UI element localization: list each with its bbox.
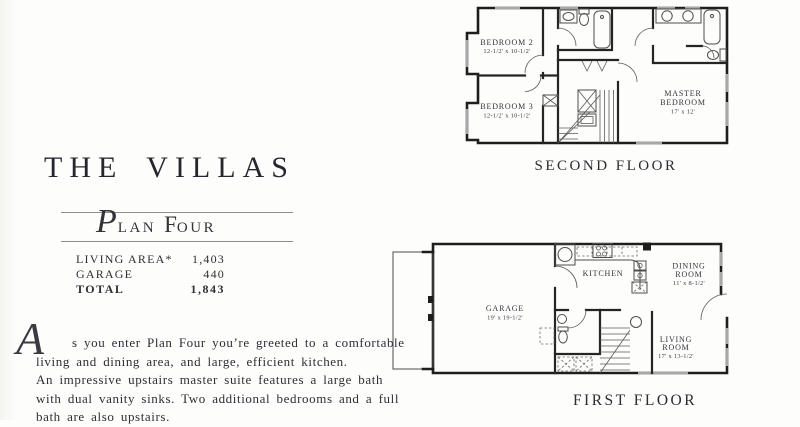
area-stats-table: LIVING AREA* 1,403 GARAGE 440 TOTAL 1,84… xyxy=(76,252,225,297)
bedroom3-label: BEDROOM 3 xyxy=(480,102,533,111)
total-label: TOTAL xyxy=(76,282,124,297)
stat-row-total: TOTAL 1,843 xyxy=(76,282,225,297)
garage-label: GARAGE xyxy=(76,267,133,282)
first-floor-caption: FIRST FLOOR xyxy=(485,392,785,410)
stat-row-garage: GARAGE 440 xyxy=(76,267,225,282)
garage-door-panel xyxy=(393,252,433,369)
brochure-page: THE VILLAS PLANFOUR LIVING AREA* 1,403 G… xyxy=(0,0,800,420)
plan-word1-rest: LAN xyxy=(118,220,156,237)
total-value: 1,843 xyxy=(191,282,226,297)
description-line: living and dining area, and large, effic… xyxy=(36,353,408,372)
bedroom2-label: BEDROOM 2 xyxy=(480,38,533,47)
plan-rule-bottom xyxy=(61,241,293,242)
description-paragraph: s you enter Plan Four you’re greeted to … xyxy=(36,334,408,427)
second-floor-walls xyxy=(467,8,727,143)
plan-word2-initial: F xyxy=(164,212,177,238)
second-floor-door-arcs xyxy=(525,28,714,92)
description-line: s you enter Plan Four you’re greeted to … xyxy=(36,334,408,353)
second-floor-stairs xyxy=(558,90,614,143)
living-room-dims: 17' x 13-1/2' xyxy=(658,353,694,360)
description-line: bath are also upstairs. xyxy=(36,408,408,427)
living-area-label: LIVING AREA* xyxy=(76,252,173,267)
stat-row-living-area: LIVING AREA* 1,403 xyxy=(76,252,225,267)
second-floor-plan: BEDROOM 2 12-1/2' x 10-1/2' BEDROOM 3 12… xyxy=(440,0,740,160)
bedroom3-dims: 12-1/2' x 10-1/2' xyxy=(483,113,530,120)
second-floor-caption: SECOND FLOOR xyxy=(456,158,756,175)
plan-name: PLANFOUR xyxy=(96,202,216,242)
master-bedroom-label-line1: MASTER xyxy=(664,89,701,98)
dining-room-label-line2: ROOM xyxy=(675,270,702,279)
description-line: An impressive upstairs master suite feat… xyxy=(36,371,408,390)
master-bedroom-label-line2: BEDROOM xyxy=(660,98,706,107)
plan-word2-rest: OUR xyxy=(177,220,216,237)
description-line: with dual vanity sinks. Two additional b… xyxy=(36,390,408,409)
garage-label: GARAGE xyxy=(486,304,524,313)
master-bedroom-dims: 17' x 12' xyxy=(671,109,695,116)
first-floor-plan: GARAGE 19' x 19-1/2' KITCHEN DINING ROOM… xyxy=(388,230,738,382)
bedroom2-dims: 12-1/2' x 10-1/2' xyxy=(483,48,530,55)
garage-value: 440 xyxy=(203,267,225,282)
kitchen-label: KITCHEN xyxy=(583,269,624,278)
page-title: THE VILLAS xyxy=(44,151,295,185)
living-room-label-line2: ROOM xyxy=(662,343,689,352)
plan-script-initial: P xyxy=(96,202,117,242)
dining-room-dims: 11' x 8-1/2' xyxy=(673,280,705,287)
living-area-value: 1,403 xyxy=(192,252,225,267)
first-floor-stairs xyxy=(600,317,642,374)
half-bath-fixtures xyxy=(540,315,592,372)
garage-dims: 19' x 19-1/2' xyxy=(487,315,523,322)
